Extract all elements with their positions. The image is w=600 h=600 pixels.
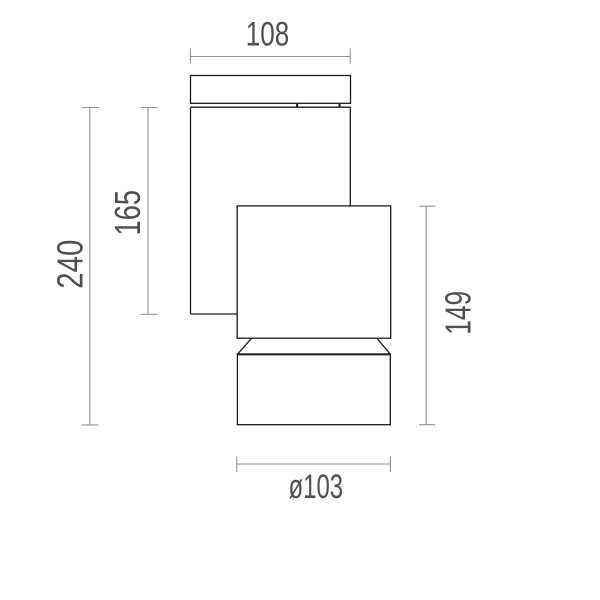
svg-text:108: 108 xyxy=(246,16,290,54)
svg-text:165: 165 xyxy=(107,190,148,236)
svg-text:ø103: ø103 xyxy=(289,468,344,506)
svg-text:240: 240 xyxy=(50,240,91,289)
svg-text:149: 149 xyxy=(438,291,479,335)
